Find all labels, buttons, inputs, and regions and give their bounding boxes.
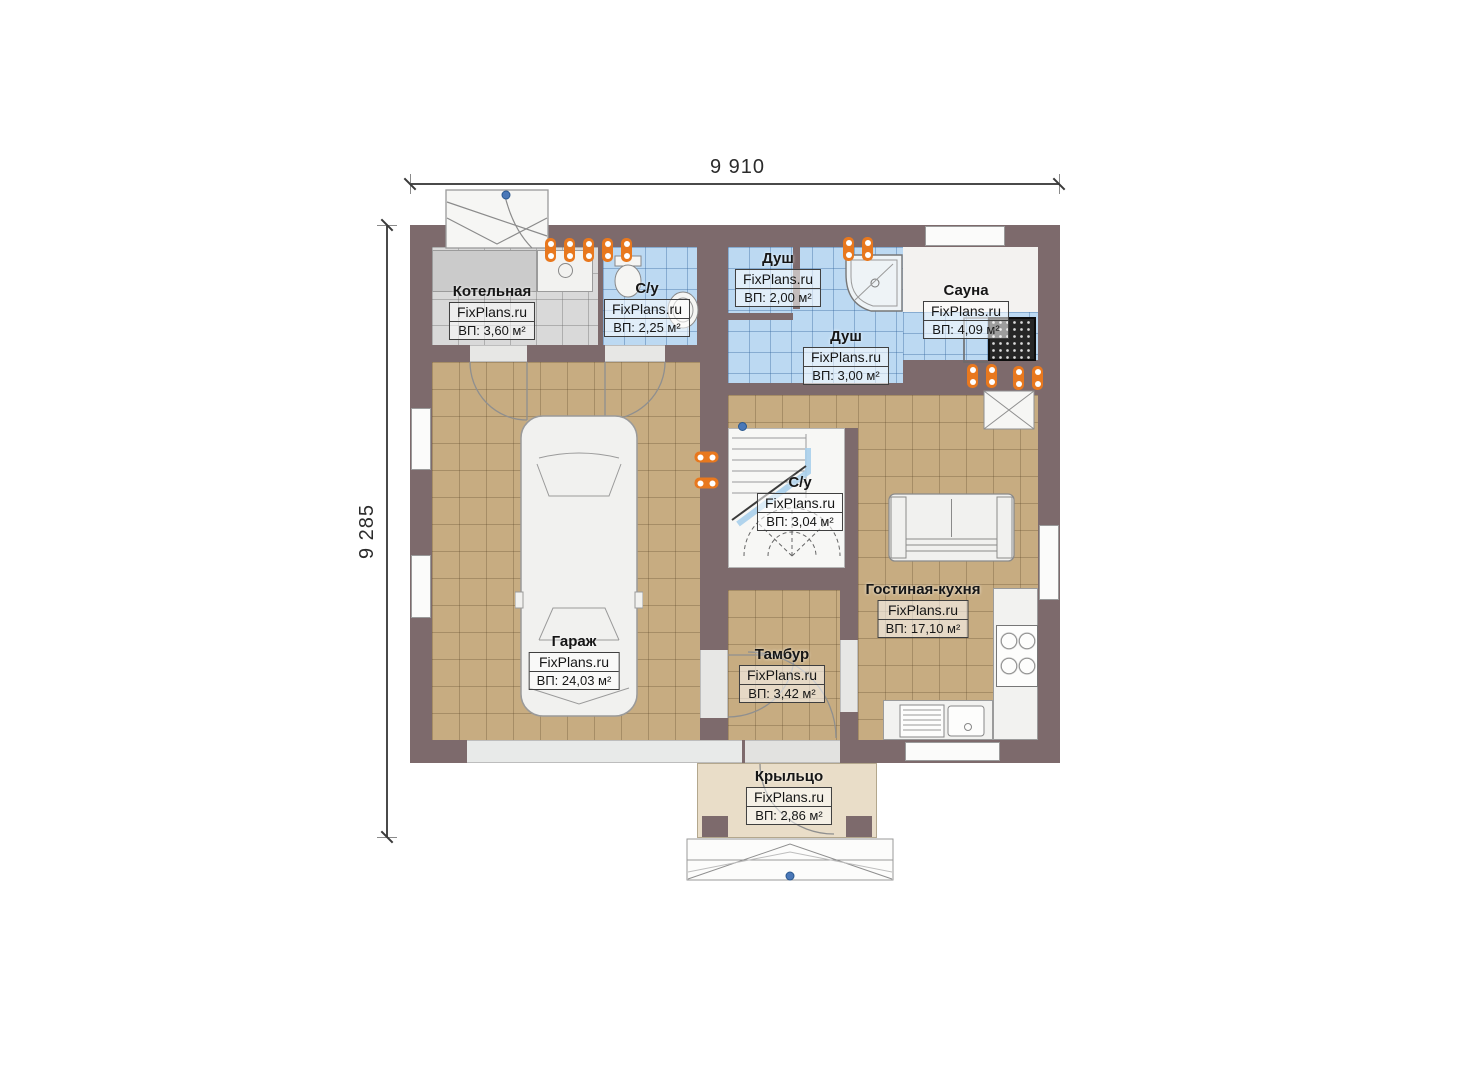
room-name: С/у xyxy=(604,280,690,297)
room-area: ВП: 2,00 м² xyxy=(736,289,820,306)
watermark: FixPlans.ru xyxy=(747,788,831,807)
radiator-icon xyxy=(986,364,997,388)
sofa-icon xyxy=(888,493,1015,562)
radiator-icon xyxy=(862,237,873,261)
boiler-door-opening xyxy=(470,345,527,362)
room-label-wc1: С/у FixPlans.ruВП: 2,25 м² xyxy=(604,280,690,337)
window-left-1 xyxy=(411,408,431,470)
cooktop-icon xyxy=(996,625,1038,687)
watermark: FixPlans.ru xyxy=(530,653,619,672)
room-area: ВП: 3,00 м² xyxy=(804,367,888,384)
window-left-2 xyxy=(411,555,431,618)
entry-door-opening xyxy=(745,740,840,763)
room-name: Гараж xyxy=(529,633,620,650)
radiator-icon xyxy=(843,237,854,261)
radiator-icon xyxy=(967,364,978,388)
room-name: Сауна xyxy=(923,282,1009,299)
room-label-shower1: Душ FixPlans.ruВП: 2,00 м² xyxy=(735,250,821,307)
stair-marker-dot xyxy=(738,422,747,431)
vestibule-left-door-opening xyxy=(700,650,728,718)
room-name: Душ xyxy=(803,328,889,345)
room-label-wc2: С/у FixPlans.ruВП: 3,04 м² xyxy=(757,474,843,531)
boiler-sink-icon xyxy=(558,263,573,278)
vestibule-right-door-opening xyxy=(840,640,858,712)
watermark: FixPlans.ru xyxy=(740,666,824,685)
porch-pier-left xyxy=(702,816,728,837)
interior-wall xyxy=(728,313,793,320)
exterior-steps-icon xyxy=(444,188,550,252)
room-name: Крыльцо xyxy=(746,768,832,785)
room-label-boiler: Котельная FixPlans.ruВП: 3,60 м² xyxy=(449,283,535,340)
radiator-icon xyxy=(583,238,594,262)
radiator-icon xyxy=(564,238,575,262)
room-name: С/у xyxy=(757,474,843,491)
watermark: FixPlans.ru xyxy=(879,601,968,620)
wc1-door-opening xyxy=(605,345,665,362)
room-area: ВП: 2,25 м² xyxy=(605,319,689,336)
room-name: Душ xyxy=(735,250,821,267)
room-label-living-kitchen: Гостиная-кухня FixPlans.ruВП: 17,10 м² xyxy=(866,581,981,638)
porch-steps-icon xyxy=(686,838,894,882)
radiator-icon xyxy=(1013,366,1024,390)
room-area: ВП: 4,09 м² xyxy=(924,321,1008,338)
room-label-shower2: Душ FixPlans.ruВП: 3,00 м² xyxy=(803,328,889,385)
dimension-height-label: 9 285 xyxy=(356,504,379,559)
watermark: FixPlans.ru xyxy=(450,303,534,322)
room-name: Тамбур xyxy=(739,646,825,663)
kitchen-sink-icon xyxy=(898,703,988,739)
porch-pier-right xyxy=(846,816,872,837)
radiator-icon xyxy=(621,238,632,262)
room-area: ВП: 2,86 м² xyxy=(747,807,831,824)
radiator-icon xyxy=(1032,366,1043,390)
radiator-icon xyxy=(545,238,556,262)
room-area: ВП: 3,60 м² xyxy=(450,322,534,339)
watermark: FixPlans.ru xyxy=(736,270,820,289)
room-label-sauna: Сауна FixPlans.ruВП: 4,09 м² xyxy=(923,282,1009,339)
room-area: ВП: 17,10 м² xyxy=(879,620,968,637)
radiator-icon xyxy=(695,452,719,463)
watermark: FixPlans.ru xyxy=(924,302,1008,321)
dimension-width-label: 9 910 xyxy=(710,156,765,179)
room-label-vestibule: Тамбур FixPlans.ruВП: 3,42 м² xyxy=(739,646,825,703)
room-name: Котельная xyxy=(449,283,535,300)
radiator-icon xyxy=(602,238,613,262)
watermark: FixPlans.ru xyxy=(758,494,842,513)
radiator-icon xyxy=(695,478,719,489)
room-name: Гостиная-кухня xyxy=(866,581,981,598)
room-label-porch: Крыльцо FixPlans.ruВП: 2,86 м² xyxy=(746,768,832,825)
vent-shaft-icon xyxy=(983,390,1035,430)
window-right xyxy=(1039,525,1059,600)
dimension-line-top xyxy=(410,183,1060,185)
window-bottom-kitchen xyxy=(905,742,1000,761)
room-label-garage: Гараж FixPlans.ruВП: 24,03 м² xyxy=(529,633,620,690)
room-area: ВП: 3,04 м² xyxy=(758,513,842,530)
floor-plan-canvas: 9 910 9 285 xyxy=(0,0,1474,1080)
room-area: ВП: 3,42 м² xyxy=(740,685,824,702)
room-area: ВП: 24,03 м² xyxy=(530,672,619,689)
dimension-line-left xyxy=(386,225,388,838)
hall-floor xyxy=(728,395,858,428)
garage-gate-opening xyxy=(467,740,742,763)
watermark: FixPlans.ru xyxy=(605,300,689,319)
window-top xyxy=(925,226,1005,246)
shower-tray-icon xyxy=(843,252,905,314)
watermark: FixPlans.ru xyxy=(804,348,888,367)
